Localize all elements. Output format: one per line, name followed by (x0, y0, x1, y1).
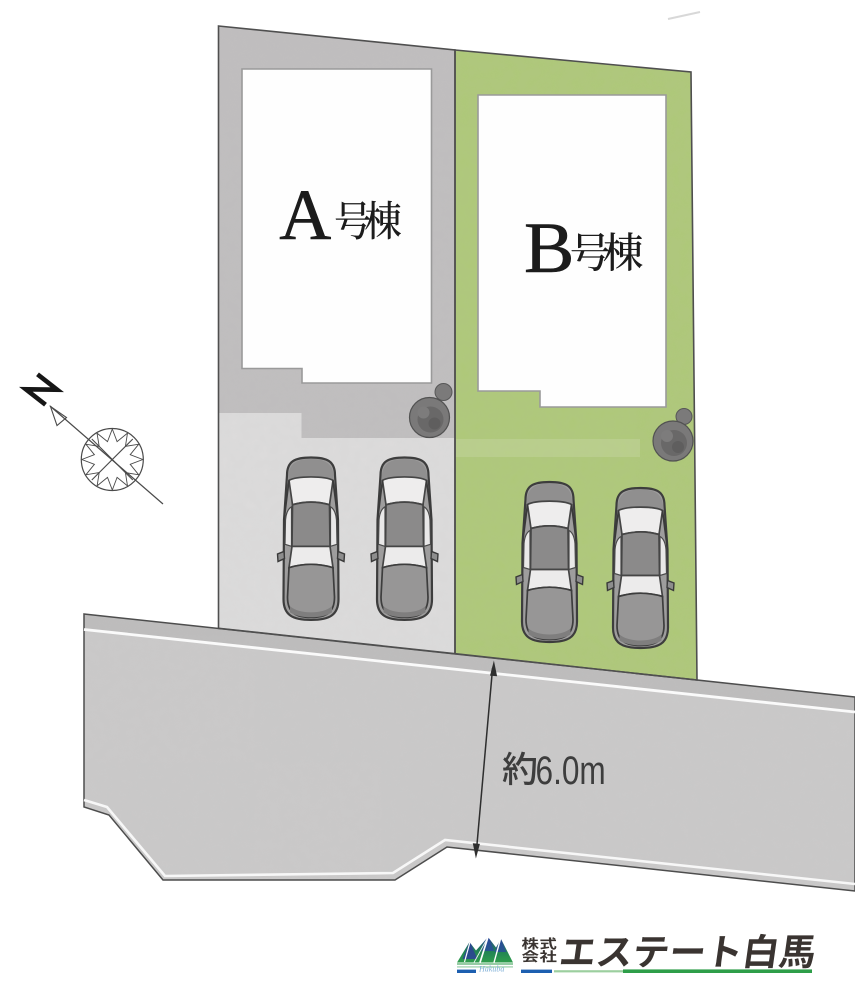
svg-text:A: A (279, 175, 331, 255)
svg-text:Hakuba: Hakuba (478, 965, 504, 974)
svg-text:B: B (524, 208, 574, 288)
svg-text:6.0m: 6.0m (536, 747, 606, 792)
